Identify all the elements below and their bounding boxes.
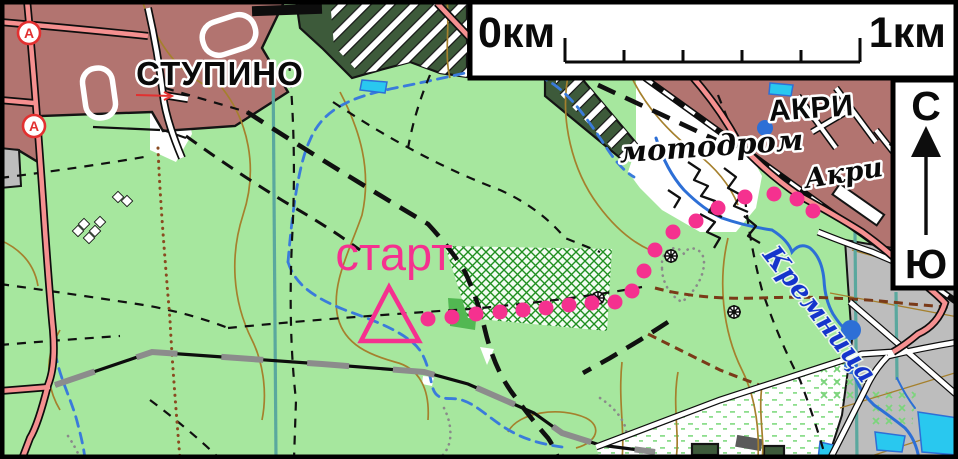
svg-text:А: А: [24, 25, 34, 41]
route-dot: [689, 214, 704, 229]
svg-text:А: А: [29, 118, 39, 134]
route-dot: [562, 298, 577, 313]
label-akri-town: АКРИ: [768, 89, 856, 128]
bus-stop-icon: А: [18, 22, 40, 44]
compass-south-label: Ю: [905, 241, 947, 287]
route-dot: [625, 284, 640, 299]
scale-start-label: 0км: [478, 9, 555, 57]
compass: С Ю: [893, 80, 958, 288]
scale-end-label: 1км: [869, 9, 946, 57]
route-dot: [806, 204, 821, 219]
route-dot: [469, 307, 484, 322]
route-dot: [767, 187, 782, 202]
landmark-icon: [727, 305, 741, 319]
route-dot: [608, 295, 623, 310]
route-dot: [539, 301, 554, 316]
route-dot: [585, 296, 600, 311]
route-dot: [516, 303, 531, 318]
route-dot: [445, 310, 460, 325]
compass-north-label: С: [911, 83, 941, 129]
route-dot: [790, 192, 805, 207]
route-dot: [637, 264, 652, 279]
route-dot: [666, 225, 681, 240]
bus-stop-icon: А: [23, 115, 45, 137]
route-dot: [648, 243, 663, 258]
route-dot: [738, 190, 753, 205]
scale-bar: 0км 1км: [470, 0, 958, 78]
map-canvas[interactable]: А А СТУПИНО АКРИ мотодром Акри Кремница …: [0, 0, 958, 459]
landmark-icon: [664, 249, 678, 263]
label-stupino: СТУПИНО: [136, 55, 304, 92]
route-dot: [711, 201, 726, 216]
route-dot: [493, 305, 508, 320]
label-start: старт: [335, 227, 452, 280]
route-dot: [421, 312, 436, 327]
map-screenshot: А А СТУПИНО АКРИ мотодром Акри Кремница …: [0, 0, 958, 459]
